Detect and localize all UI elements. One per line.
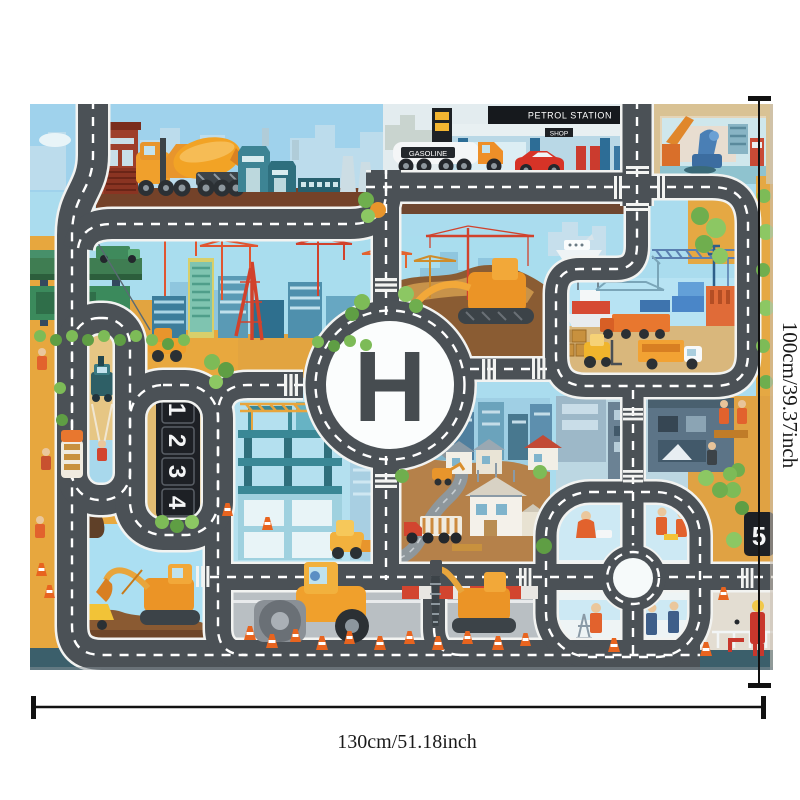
svg-text:PETROL STATION: PETROL STATION: [528, 111, 612, 121]
svg-text:2: 2: [163, 434, 190, 447]
svg-text:1: 1: [163, 403, 190, 416]
svg-text:3: 3: [163, 465, 190, 478]
svg-text:SHOP: SHOP: [550, 131, 568, 138]
svg-text:100cm/39.37inch: 100cm/39.37inch: [778, 322, 800, 469]
svg-text:130cm/51.18inch: 130cm/51.18inch: [337, 731, 476, 753]
svg-text:4: 4: [163, 496, 190, 510]
svg-text:GASOLINE: GASOLINE: [409, 149, 447, 158]
